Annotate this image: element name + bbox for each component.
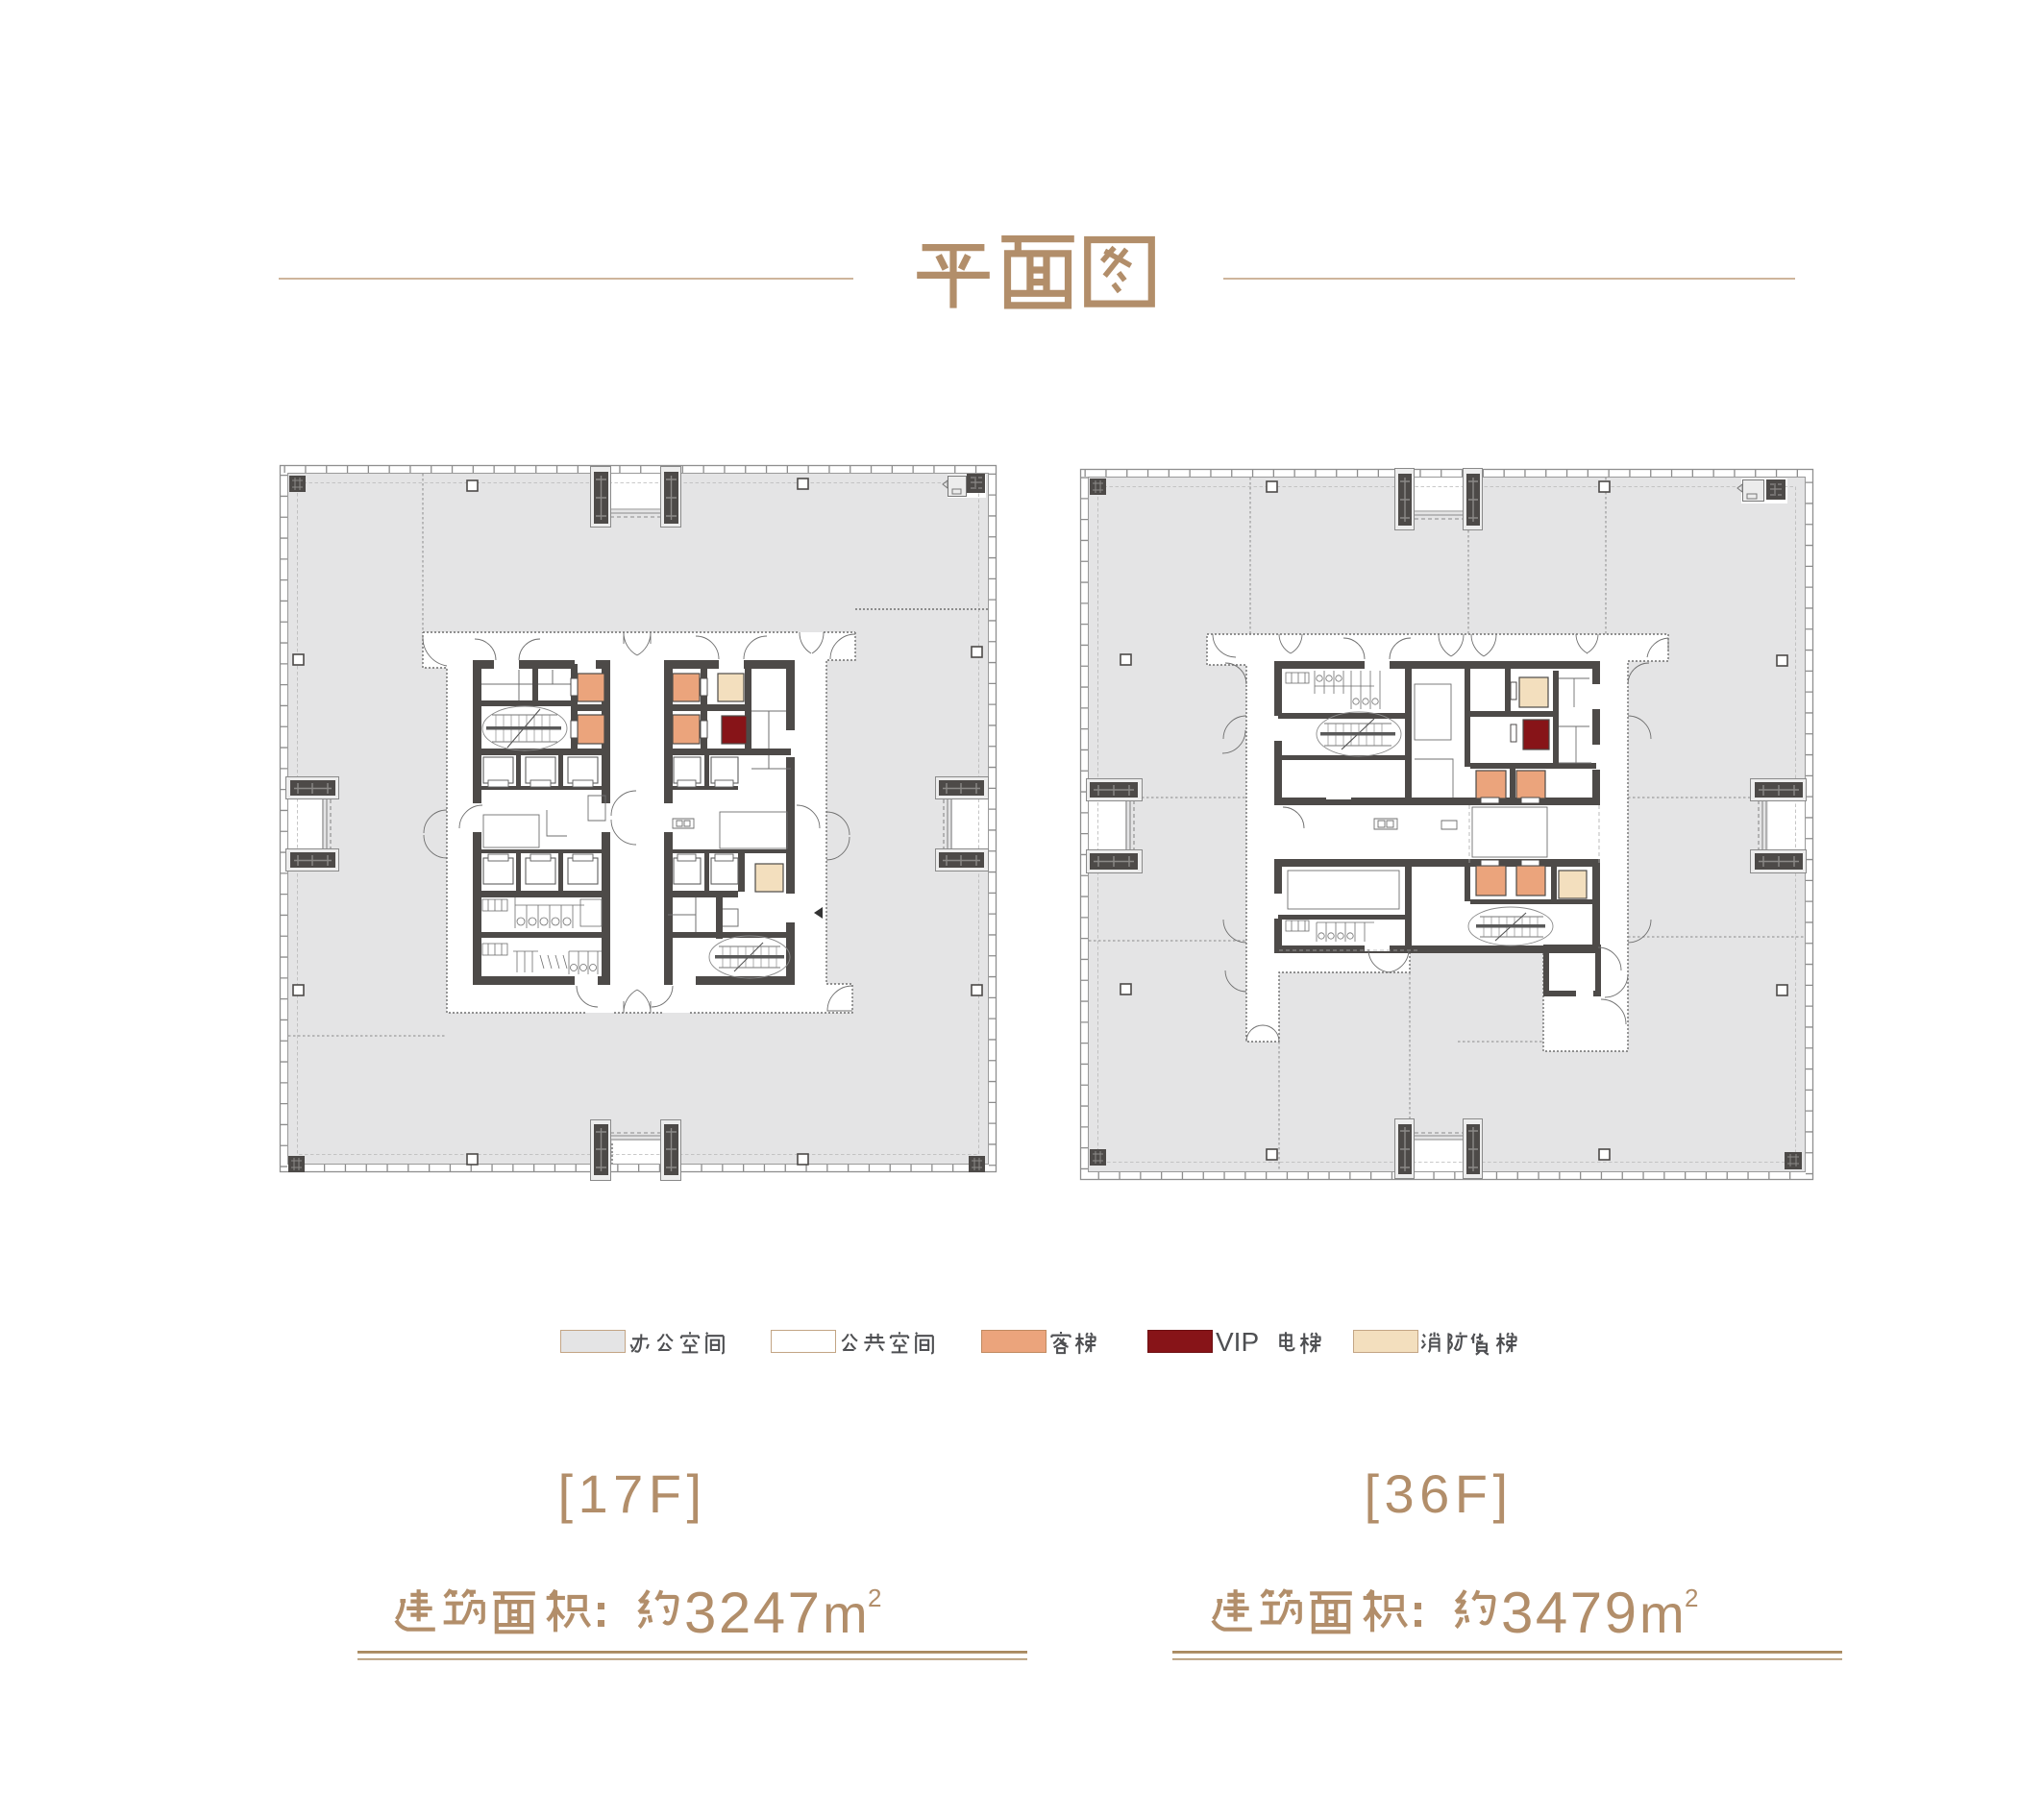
svg-text:2: 2 [868, 1584, 881, 1612]
svg-text:3479: 3479 [1501, 1581, 1638, 1645]
svg-text:m: m [823, 1584, 868, 1644]
svg-text:[36F]: [36F] [1364, 1463, 1513, 1524]
svg-text:2: 2 [1685, 1584, 1698, 1612]
svg-text:[17F]: [17F] [557, 1463, 706, 1524]
svg-text:3247: 3247 [684, 1581, 822, 1645]
svg-text:m: m [1639, 1584, 1685, 1644]
svg-text:VIP: VIP [1216, 1327, 1259, 1357]
